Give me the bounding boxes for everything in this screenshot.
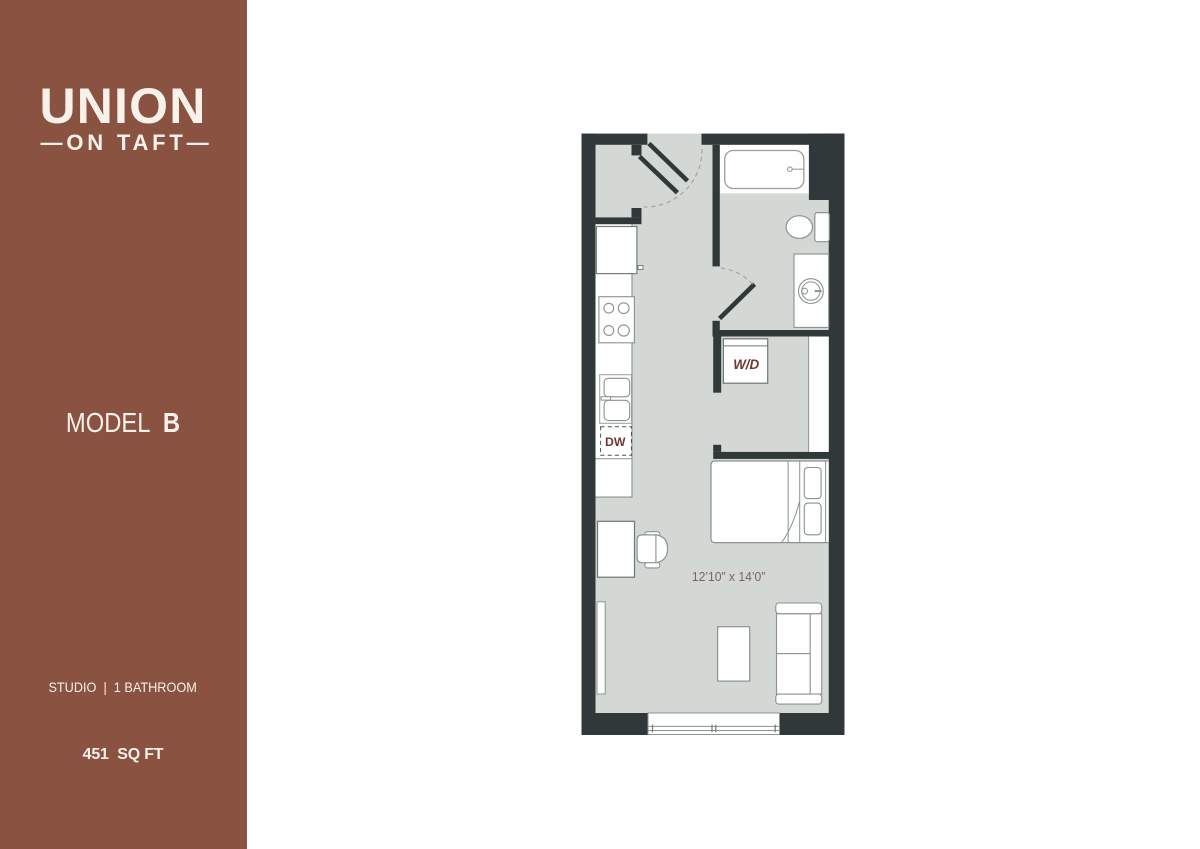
svg-text:12’10” x 14’0”: 12’10” x 14’0” <box>692 569 766 584</box>
svg-text:W/D: W/D <box>733 357 759 372</box>
svg-text:DW: DW <box>605 435 626 449</box>
